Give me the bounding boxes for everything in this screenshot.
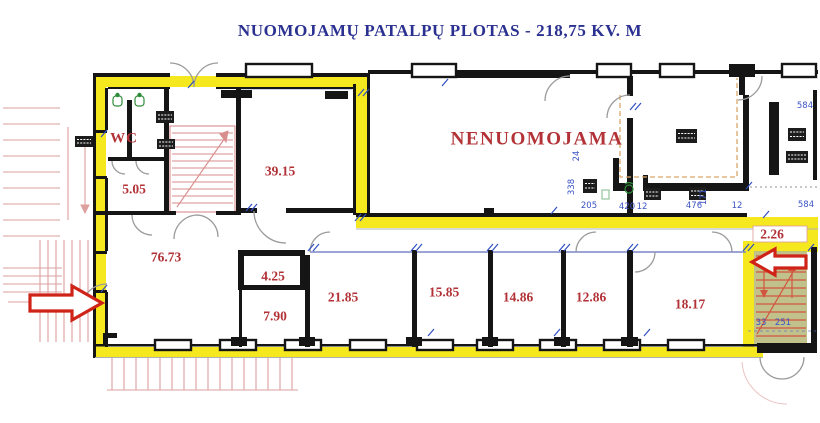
room-area-label: 2.26 — [760, 227, 784, 241]
room-area-label: 7.90 — [263, 309, 287, 323]
dimension-label: 12 — [732, 202, 743, 211]
dimension-label: 205 — [581, 202, 597, 211]
dimension-label: 24 — [573, 151, 582, 162]
room-area-label: 18.17 — [675, 297, 705, 311]
room-area-label: 12.86 — [576, 290, 606, 304]
dimension-label: 251 — [775, 319, 791, 328]
room-label-wc: WC — [110, 132, 138, 147]
floor-plan: NUOMOJAMŲ PATALPŲ PLOTAS - 218,75 KV. M … — [0, 0, 820, 423]
room-area-label: 14.86 — [503, 290, 533, 304]
non-rentable-label: NENUOMOJAMA — [451, 130, 624, 149]
dimension-label: 584 — [798, 201, 814, 210]
dimension-label: 12 — [637, 203, 648, 212]
room-labels-layer: WCNENUOMOJAMA5.0539.1576.734.257.9021.85… — [0, 0, 820, 423]
dimension-label: 171 — [700, 189, 709, 205]
dimension-label: 420 — [619, 203, 635, 212]
room-area-label: 39.15 — [265, 164, 295, 178]
room-area-label: 76.73 — [151, 250, 181, 264]
room-area-label: 5.05 — [122, 182, 146, 196]
dimension-label: 338 — [568, 179, 577, 195]
room-area-label: 15.85 — [429, 285, 459, 299]
room-area-label: 21.85 — [328, 290, 358, 304]
dimension-label: 33 — [756, 319, 767, 328]
dimension-label: 584 — [797, 102, 813, 111]
room-area-label: 4.25 — [261, 269, 285, 283]
